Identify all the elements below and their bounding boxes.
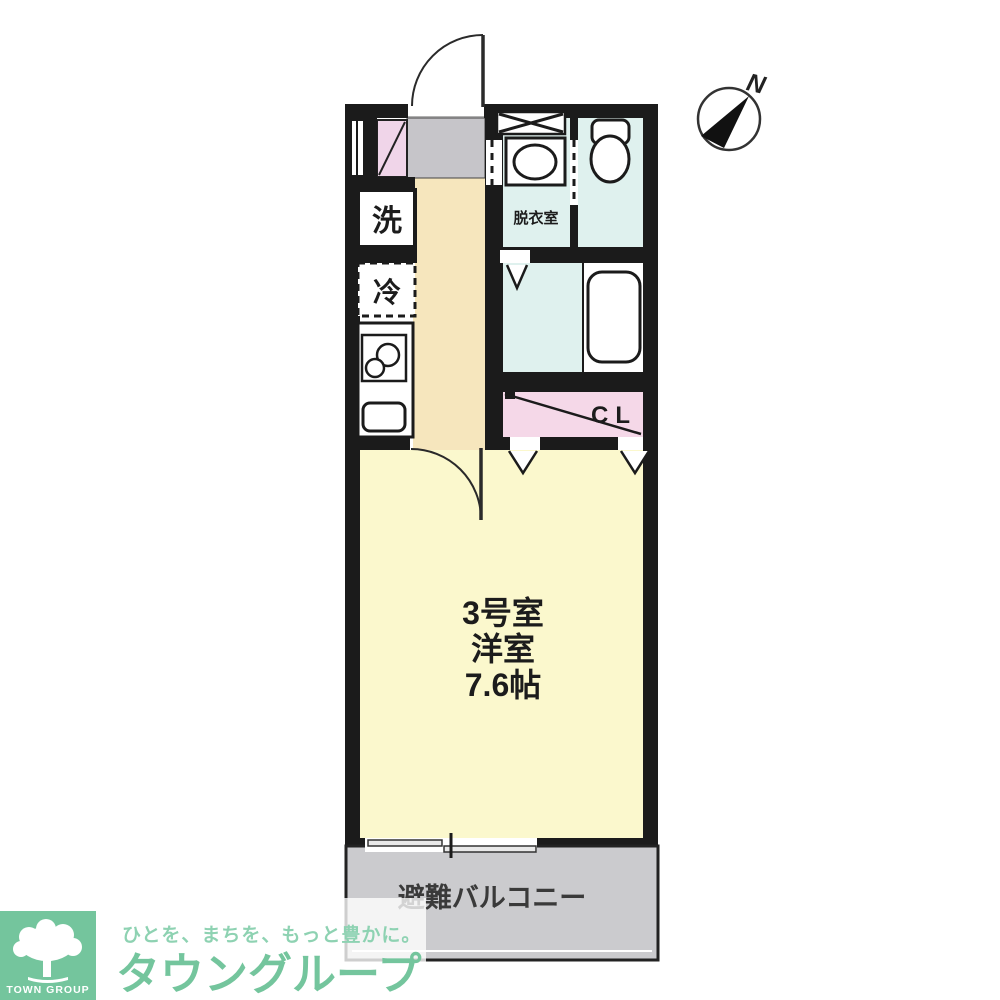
entrance-door-arc [412,35,483,106]
compass-north-label: N [744,68,769,100]
stove-burner-small [366,359,384,377]
dressing-door-opening [486,140,502,185]
main-room-label-line2: 洋室 [471,631,535,667]
closet-label: CL [591,402,637,429]
wall-kitchen-bottom [345,437,410,450]
washer-label: 洗 [372,205,402,238]
wall-closet-bottom-a [485,437,510,450]
wall-under-bath [485,372,658,392]
floor-plan-image: 洗 冷 脱衣室 CL 3号室 洋室 7.6帖 避難バルコニー N [0,0,1000,1000]
bathtub [588,272,640,362]
genkan-entry-floor [407,118,485,178]
balcony-window-panel-right [444,846,536,852]
washbasin-bowl [514,145,556,179]
kitchen-sink [363,403,405,431]
wall-toilet-sep-bottom [570,205,578,247]
toilet-bowl [591,136,629,182]
compass: N [698,68,769,150]
dressing-room-label: 脱衣室 [513,209,558,227]
wall-closet-bottom-b [540,437,618,450]
wall-washer-fridge [345,247,417,263]
bath-door-opening [500,250,530,263]
balcony-window-panel-left [368,840,442,846]
corridor-kitchen-floor [413,177,485,450]
logo-square-label: TOWN GROUP [6,984,89,996]
compass-needle [701,96,749,148]
main-room-label-line3: 7.6帖 [465,667,542,703]
floor-plan-svg: 洗 冷 脱衣室 CL 3号室 洋室 7.6帖 避難バルコニー N [0,0,1000,1000]
wall-right [643,104,658,852]
brand-tagline: ひとを、まちを、もっと豊かに。 [122,923,421,946]
town-group-logo: TOWN GROUP [0,911,96,1000]
main-room-label-line1: 3号室 [462,595,544,631]
wall-toilet-sep-top [570,104,578,140]
main-room-label: 3号室 洋室 7.6帖 [462,595,544,703]
fridge-label: 冷 [373,277,401,308]
balcony-label: 避難バルコニー [398,882,586,913]
brand-name: タウングループ [116,950,421,999]
